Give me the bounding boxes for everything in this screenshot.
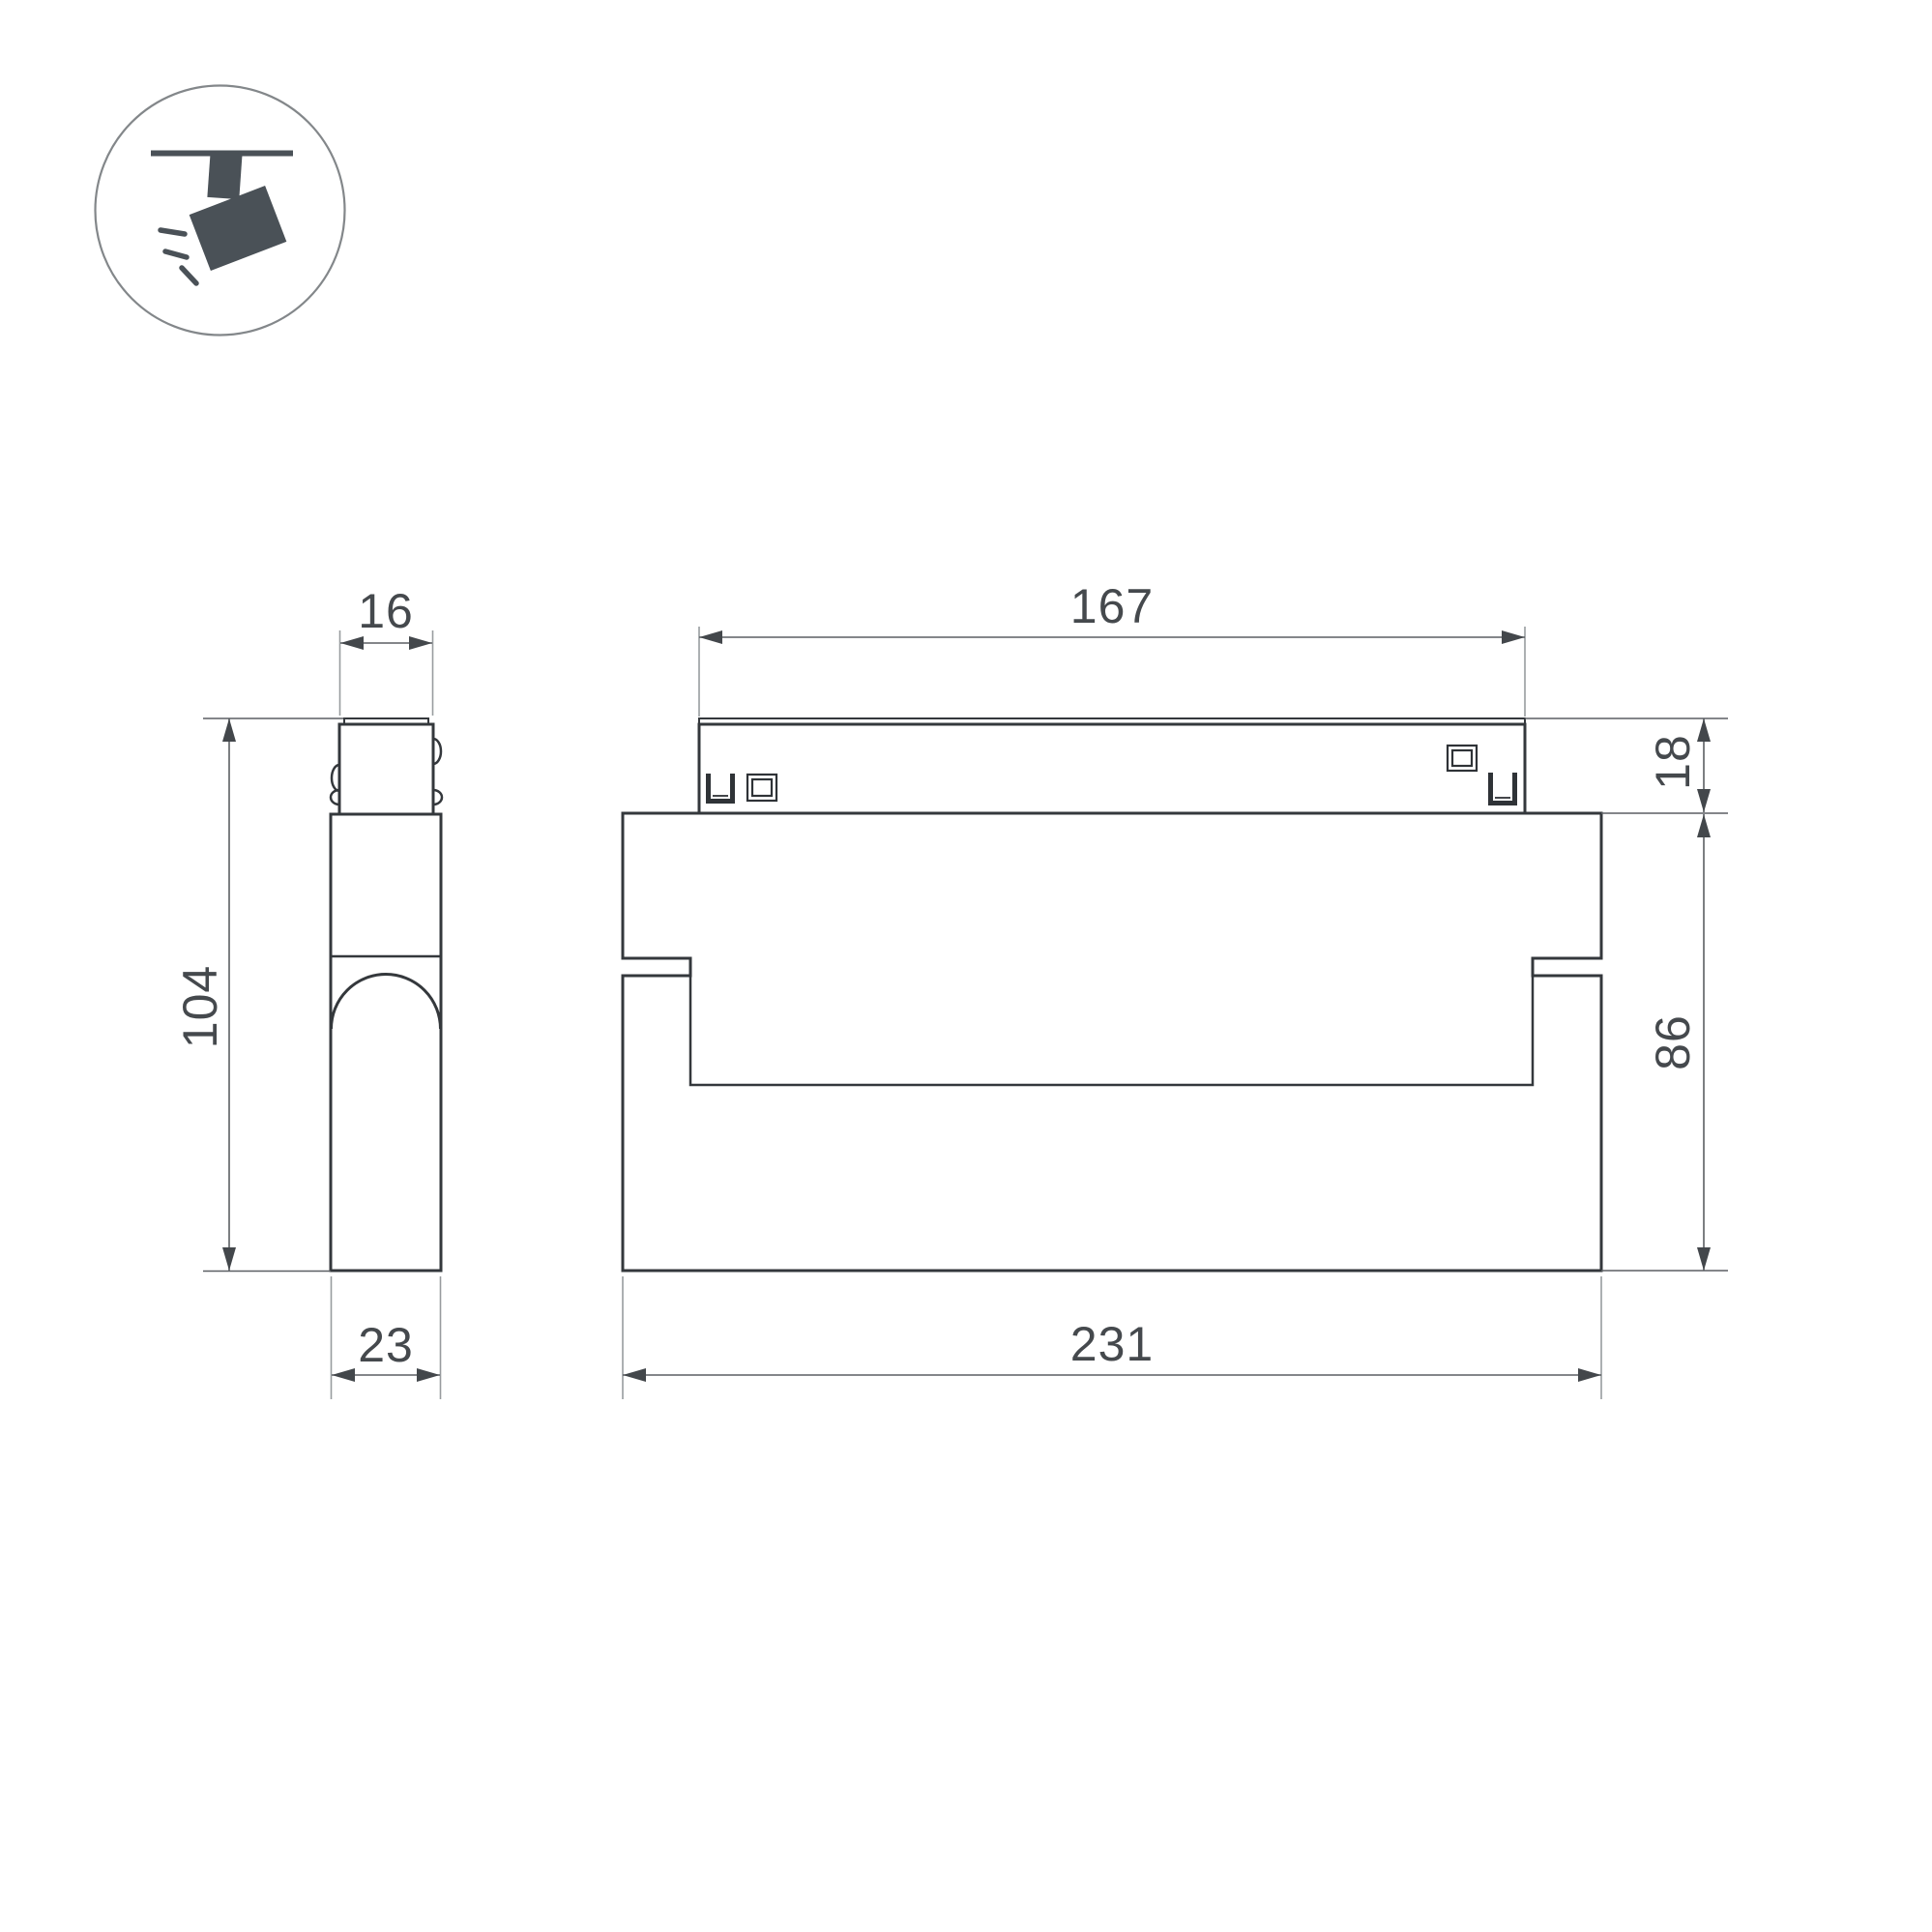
icon-spotlight-stem — [207, 152, 242, 199]
dim-16: 16 — [340, 584, 433, 716]
dim-86-label: 86 — [1646, 1014, 1700, 1070]
dimension-drawing: 16 104 23 167 18 — [0, 0, 1932, 1932]
arrowhead-left — [340, 636, 364, 650]
arrowhead-down — [222, 1247, 236, 1271]
arrowhead-left — [699, 630, 722, 644]
dim-167-label: 167 — [1070, 579, 1154, 633]
arrowhead-up — [222, 718, 236, 742]
dim-231: 231 — [623, 1276, 1601, 1399]
track-spotlight-icon — [96, 86, 345, 336]
dim-23: 23 — [332, 1276, 441, 1399]
dim-16-label: 16 — [358, 584, 414, 638]
dim-104: 104 — [173, 718, 343, 1272]
arrowhead-left — [623, 1368, 646, 1382]
front-view — [623, 718, 1601, 1271]
dim-86: 86 — [1601, 814, 1728, 1271]
arrowhead-down — [1697, 1247, 1711, 1271]
drawing-canvas: 16 104 23 167 18 — [0, 0, 1932, 1932]
dim-18-label: 18 — [1646, 734, 1700, 790]
arrowhead-left — [332, 1368, 355, 1382]
dim-23-label: 23 — [358, 1318, 414, 1372]
arrowhead-right — [1502, 630, 1525, 644]
side-lamp-body — [331, 814, 441, 1271]
side-connector-body — [339, 724, 433, 814]
arrowhead-right — [409, 636, 432, 650]
arrowhead-down — [1697, 789, 1711, 812]
front-lamp-body — [623, 813, 1601, 1271]
arrowhead-right — [417, 1368, 440, 1382]
dim-18: 18 — [1525, 718, 1728, 813]
side-view — [331, 718, 442, 1271]
dim-167: 167 — [699, 579, 1525, 717]
arrowhead-right — [1578, 1368, 1601, 1382]
dim-104-label: 104 — [173, 965, 227, 1048]
front-connector-bar — [699, 724, 1525, 813]
dim-231-label: 231 — [1070, 1317, 1154, 1371]
arrowhead-up — [1697, 814, 1711, 837]
